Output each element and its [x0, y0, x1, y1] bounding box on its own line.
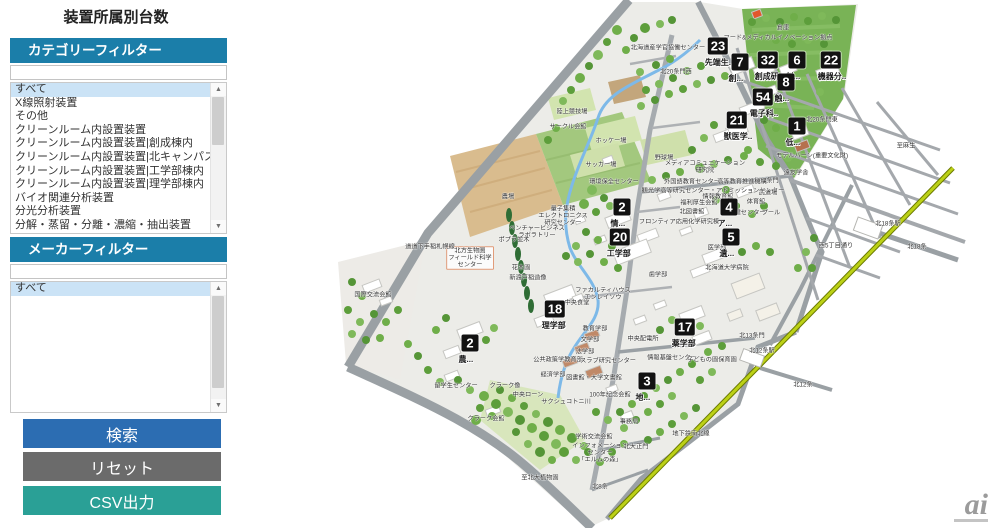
ai-logo-text: ai — [954, 492, 988, 518]
filter-option[interactable]: クリーンルーム内設置装置 — [11, 124, 211, 138]
map-badge-2[interactable]: 2農... — [462, 335, 479, 352]
badge-label: 獣医学.. — [724, 130, 752, 142]
badge-count: 54 — [753, 89, 773, 106]
map-badge-6[interactable]: 6創... — [789, 52, 806, 69]
maker-filter-header: メーカーフィルター — [10, 237, 227, 262]
category-filter-input[interactable] — [10, 65, 227, 80]
page-title: 装置所属別台数 — [0, 6, 232, 27]
filter-option[interactable]: すべて — [11, 282, 211, 296]
badge-count: 8 — [778, 74, 795, 91]
map-badge-23[interactable]: 23先端生.. — [708, 38, 728, 55]
badge-count: 20 — [610, 229, 630, 246]
badge-count: 6 — [789, 52, 806, 69]
map-badge-8[interactable]: 8触... — [778, 74, 795, 91]
scroll-down-icon[interactable]: ▼ — [211, 220, 226, 233]
badge-count: 5 — [723, 229, 740, 246]
badge-label: ア... — [718, 217, 733, 229]
scroll-thumb[interactable] — [212, 97, 224, 145]
badge-count: 21 — [727, 112, 747, 129]
search-button[interactable]: 検索 — [23, 419, 221, 448]
badge-label: 工学部 — [607, 247, 631, 259]
badge-label: 先端生.. — [705, 56, 733, 68]
badge-count: 17 — [675, 319, 695, 336]
scroll-up-icon[interactable]: ▲ — [211, 282, 226, 295]
maker-filter-list[interactable]: すべて ▲ ▼ — [10, 281, 227, 413]
filter-option[interactable]: その他 — [11, 110, 211, 124]
map-badge-20[interactable]: 20工学部 — [610, 229, 630, 246]
map-badge-32[interactable]: 32創成研.. — [758, 52, 778, 69]
badge-label: 触... — [775, 92, 790, 104]
category-list-scrollbar[interactable]: ▲ ▼ — [210, 83, 226, 233]
badge-label: 創... — [729, 72, 744, 84]
badge-count: 1 — [789, 118, 806, 135]
maker-list-scrollbar[interactable]: ▲ ▼ — [210, 282, 226, 412]
badge-count: 2 — [614, 199, 631, 216]
badge-label: 機器分.. — [818, 70, 846, 82]
badge-label: 薬学部 — [672, 337, 696, 349]
map-badge-4[interactable]: 4ア... — [721, 199, 738, 216]
filter-option[interactable]: 分光分析装置 — [11, 205, 211, 219]
filter-option[interactable]: クリーンルーム内設置装置|創成棟内 — [11, 137, 211, 151]
reset-button[interactable]: リセット — [23, 452, 221, 481]
scroll-up-icon[interactable]: ▲ — [211, 83, 226, 96]
badge-label: 電子科.. — [750, 107, 778, 119]
map-badge-54[interactable]: 54電子科.. — [753, 89, 773, 106]
scroll-down-icon[interactable]: ▼ — [211, 399, 226, 412]
maker-filter-input[interactable] — [10, 264, 227, 279]
ai-logo: ai — [954, 492, 988, 522]
map-badge-7[interactable]: 7創... — [732, 54, 749, 71]
badge-label: 地... — [636, 391, 651, 403]
map-badge-18[interactable]: 18理学部 — [545, 301, 565, 318]
badge-count: 4 — [721, 199, 738, 216]
filter-sidebar: 装置所属別台数 カテゴリーフィルター すべてX線照射装置その他クリーンルーム内設… — [0, 0, 240, 528]
scroll-thumb[interactable] — [212, 296, 224, 388]
badge-count: 7 — [732, 54, 749, 71]
filter-option[interactable]: クリーンルーム内設置装置|理学部棟内 — [11, 178, 211, 192]
badge-label: 理学部 — [542, 319, 566, 331]
badge-count: 18 — [545, 301, 565, 318]
category-filter-header: カテゴリーフィルター — [10, 38, 227, 63]
badge-label: 低... — [786, 136, 801, 148]
badge-label: 遺... — [720, 247, 735, 259]
badge-count: 32 — [758, 52, 778, 69]
csv-export-button[interactable]: CSV出力 — [23, 486, 221, 515]
map-badge-22[interactable]: 22機器分.. — [821, 52, 841, 69]
filter-option[interactable]: X線照射装置 — [11, 97, 211, 111]
filter-option[interactable]: クリーンルーム内設置装置|北キャンパス総合研究棟2号館内 — [11, 151, 211, 165]
map-badge-1[interactable]: 1低... — [789, 118, 806, 135]
filter-option[interactable]: すべて — [11, 83, 211, 97]
filter-option[interactable]: バイオ関連分析装置 — [11, 192, 211, 206]
badge-count: 3 — [639, 373, 656, 390]
filter-option[interactable]: クリーンルーム内設置装置|工学部棟内 — [11, 165, 211, 179]
map-badge-2[interactable]: 2情... — [614, 199, 631, 216]
map-badge-17[interactable]: 17薬学部 — [675, 319, 695, 336]
map-badge-5[interactable]: 5遺... — [723, 229, 740, 246]
badge-count: 22 — [821, 52, 841, 69]
map-badge-3[interactable]: 3地... — [639, 373, 656, 390]
category-filter-list[interactable]: すべてX線照射装置その他クリーンルーム内設置装置クリーンルーム内設置装置|創成棟… — [10, 82, 227, 234]
map-badge-21[interactable]: 21獣医学.. — [727, 112, 747, 129]
badge-count: 23 — [708, 38, 728, 55]
badge-count: 2 — [462, 335, 479, 352]
badge-label: 農... — [459, 353, 474, 365]
badge-label: 情... — [611, 217, 626, 229]
filter-option[interactable]: 分解・蒸留・分離・濃縮・抽出装置 — [11, 219, 211, 233]
